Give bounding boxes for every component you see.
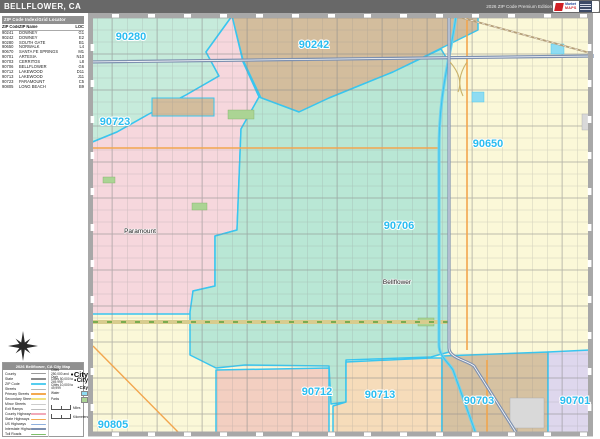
park-area: [228, 110, 254, 119]
index-cell-name: LONG BEACH: [19, 85, 75, 90]
legend-line-sample: [31, 424, 46, 426]
legend-line-sample: [31, 378, 46, 380]
map-canvas: 9028090242907239065090706908059071290713…: [86, 13, 600, 439]
title-bar: BELLFLOWER, CA 2026 ZIP Code Premium Edi…: [0, 0, 600, 13]
legend-item-label: Minor Streets: [5, 402, 31, 406]
legend-item-label: State: [5, 377, 31, 381]
scale-label: Kilometers: [73, 415, 88, 419]
legend-scales: MilesKilometers: [51, 403, 88, 421]
legend-line-sample: [31, 434, 46, 436]
legend-item-label: County Highways: [5, 412, 31, 416]
legend-swatch: [81, 397, 88, 403]
edition-label: 2026 ZIP Code Premium Edition: [486, 4, 552, 9]
marketmaps-logo: Market MAPS: [553, 1, 599, 12]
legend-item-label: Secondary Streets: [5, 397, 31, 401]
legend-line-sample: [31, 404, 46, 405]
scale-label: Miles: [73, 406, 80, 410]
index-cell-zip: 90805: [2, 85, 19, 90]
legend-line-items: CountyStateZIP CodeStreetsPrimary Street…: [3, 370, 48, 437]
legend-item-label: Interstate Highways: [5, 427, 31, 431]
park-area: [192, 203, 207, 210]
legend-item-label: ZIP Code: [5, 382, 31, 386]
zip-code-label: 90703: [464, 395, 495, 407]
logo-word-maps: MAPS: [565, 7, 577, 11]
index-table-rows: 90241DOWNEYG190242DOWNEYE290280SOUTH GAT…: [2, 31, 84, 90]
legend-item-label: US Highways: [5, 422, 31, 426]
legend-line-sample: [31, 398, 46, 400]
legend-item-label: County: [5, 372, 31, 376]
legend-item-label: Toll Roads: [5, 432, 31, 436]
map-title: BELLFLOWER, CA: [4, 2, 81, 11]
legend-item-label: Streets: [5, 387, 31, 391]
zip-code-label: 90713: [365, 389, 396, 401]
scale-bar-row: Miles: [51, 403, 88, 412]
legend-line-sample: [31, 393, 46, 395]
zip-code-label: 90706: [384, 220, 415, 232]
scale-bar: [51, 414, 71, 419]
legend-line-sample: [31, 413, 46, 415]
legend-point-items: Cities 250,000 and OverCityCities 50,000…: [51, 371, 88, 403]
logo-side-box: [579, 1, 592, 12]
zip-code-label: 90805: [98, 419, 129, 431]
scale-bar: [51, 405, 71, 410]
scale-bar-row: Kilometers: [51, 412, 88, 421]
city-sample: City: [77, 385, 88, 390]
compass-rose-icon: [8, 331, 38, 361]
zip-index-panel: ZIP Code Index/Grid Locator ZIP Code ZIP…: [2, 16, 84, 90]
city-name-label: Bellflower: [383, 279, 412, 286]
gray-facility-area: [510, 398, 544, 428]
pond: [472, 92, 484, 102]
legend-point-label: Parks: [51, 398, 81, 401]
legend-item-label: State Highways: [5, 417, 31, 421]
legend-line-sample: [31, 383, 46, 385]
zip-code-label: 90712: [302, 386, 333, 398]
index-row: 90805LONG BEACHB9: [2, 85, 84, 90]
zip-code-label: 90650: [473, 138, 504, 150]
park-area: [103, 177, 115, 183]
legend-item-label: Primary Streets: [5, 392, 31, 396]
legend-swatch: [81, 391, 88, 397]
legend-line-sample: [31, 428, 46, 430]
col-zip-code: ZIP Code: [2, 25, 19, 30]
major-street-grid: [91, 16, 591, 434]
legend-line-sample: [31, 389, 46, 390]
index-cell-loc: B9: [75, 85, 84, 90]
map-legend: 2026 Bellflower, CA City Map CountyState…: [2, 362, 84, 437]
legend-line-sample: [31, 409, 46, 410]
zip-code-label: 90723: [100, 116, 131, 128]
legend-point-label: Cities 10,000 to 49,999: [51, 384, 77, 391]
logo-flag-icon: [554, 3, 564, 11]
legend-line-sample: [31, 373, 46, 374]
col-loc: LOC: [75, 25, 84, 30]
legend-point-label: Water: [51, 392, 81, 395]
legend-point-item: Cities 10,000 to 49,999City: [51, 384, 88, 390]
col-zip-name: ZIP Name: [19, 25, 75, 30]
legend-item-label: Exit Ramps: [5, 407, 31, 411]
legend-line-sample: [31, 419, 46, 421]
legend-item: Toll Roads: [5, 432, 46, 437]
zip-code-label: 90280: [116, 31, 147, 43]
zip-code-label: 90242: [299, 39, 330, 51]
zip-code-label: 90701: [560, 395, 591, 407]
zip-index-header: ZIP Code Index/Grid Locator: [2, 16, 84, 24]
city-name-label: Paramount: [124, 228, 156, 235]
